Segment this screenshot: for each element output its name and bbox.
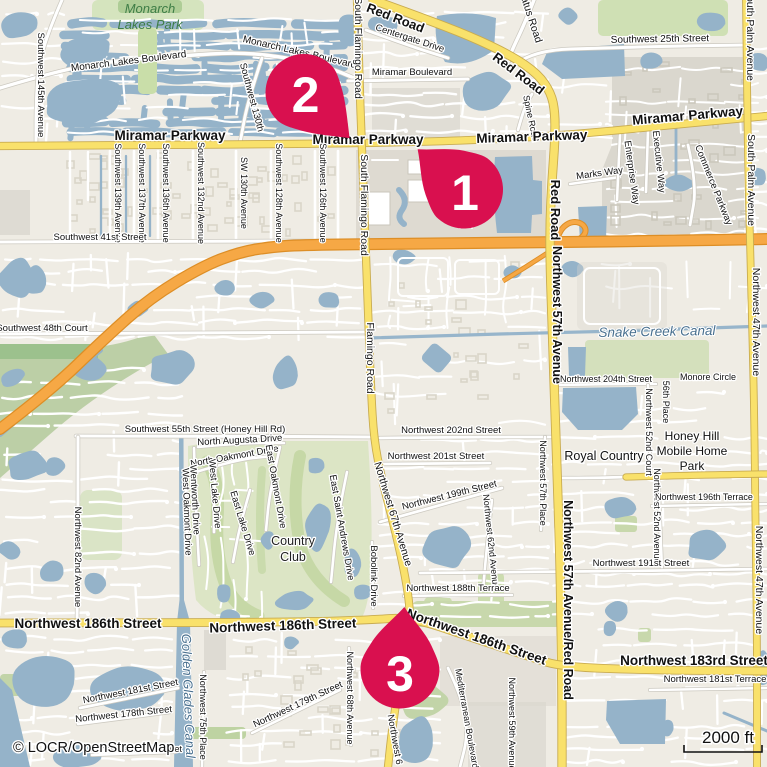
svg-text:South Flamingo Road: South Flamingo Road bbox=[352, 0, 364, 99]
svg-text:Lakes Park: Lakes Park bbox=[117, 17, 184, 32]
svg-text:2: 2 bbox=[292, 67, 320, 123]
svg-text:Mobile Home: Mobile Home bbox=[657, 444, 728, 458]
svg-text:Bobolink Drive: Bobolink Drive bbox=[368, 545, 379, 606]
svg-text:Northwest 201st Street: Northwest 201st Street bbox=[388, 451, 485, 462]
svg-text:2000 ft: 2000 ft bbox=[702, 728, 754, 747]
svg-text:Northwest 57th Avenue: Northwest 57th Avenue bbox=[550, 246, 564, 384]
svg-text:Northwest 47th Avenue: Northwest 47th Avenue bbox=[750, 268, 762, 377]
svg-text:Club: Club bbox=[280, 550, 306, 564]
svg-text:Northwest 186th Street: Northwest 186th Street bbox=[14, 616, 162, 631]
svg-text:Southwest 41st Street: Southwest 41st Street bbox=[54, 232, 147, 243]
svg-text:Northwest 202nd Street: Northwest 202nd Street bbox=[401, 425, 501, 436]
svg-text:Northwest 183rd Street: Northwest 183rd Street bbox=[620, 653, 767, 668]
svg-text:Honey Hill: Honey Hill bbox=[665, 429, 720, 443]
svg-text:Southwest 139th Avenue: Southwest 139th Avenue bbox=[113, 143, 123, 242]
svg-text:Northwest 59th Avenue: Northwest 59th Avenue bbox=[507, 678, 517, 767]
svg-text:Monore Circle: Monore Circle bbox=[680, 372, 736, 382]
svg-text:Miramar Boulevard: Miramar Boulevard bbox=[372, 67, 452, 78]
svg-text:South Palm Avenue: South Palm Avenue bbox=[744, 0, 756, 81]
svg-text:Northwest 196th Terrace: Northwest 196th Terrace bbox=[655, 492, 753, 502]
svg-text:Northwest 68th Avenue: Northwest 68th Avenue bbox=[345, 652, 355, 745]
svg-text:Northwest 57th Place: Northwest 57th Place bbox=[538, 440, 548, 526]
svg-text:Northwest 204th Street: Northwest 204th Street bbox=[560, 374, 653, 384]
svg-text:Northwest 52nd Court: Northwest 52nd Court bbox=[644, 388, 654, 476]
svg-text:Southwest 48th Court: Southwest 48th Court bbox=[0, 323, 88, 334]
svg-text:3: 3 bbox=[386, 646, 414, 702]
svg-text:Monarch: Monarch bbox=[125, 1, 176, 16]
svg-text:Southwest 128th Avenue: Southwest 128th Avenue bbox=[274, 143, 284, 242]
svg-text:56th Place: 56th Place bbox=[661, 381, 671, 424]
svg-text:Country: Country bbox=[271, 534, 316, 548]
svg-text:SW 130th Avenue: SW 130th Avenue bbox=[239, 157, 249, 229]
svg-text:Southwest 136th Avenue: Southwest 136th Avenue bbox=[161, 143, 171, 242]
svg-text:Red Road: Red Road bbox=[548, 180, 563, 241]
svg-text:Northwest 82nd Avenue: Northwest 82nd Avenue bbox=[72, 507, 83, 608]
svg-text:Southwest 132nd Avenue: Southwest 132nd Avenue bbox=[196, 142, 206, 244]
svg-text:South Palm Avenue: South Palm Avenue bbox=[745, 134, 757, 226]
svg-text:Snake Creek Canal: Snake Creek Canal bbox=[598, 323, 716, 340]
svg-text:Northwest 181st Terrace: Northwest 181st Terrace bbox=[664, 674, 767, 685]
svg-text:Northwest 75th Place: Northwest 75th Place bbox=[198, 674, 208, 760]
svg-text:Southwest 126th Avenue: Southwest 126th Avenue bbox=[318, 143, 328, 242]
svg-text:South Flamingo Road: South Flamingo Road bbox=[358, 154, 370, 256]
svg-text:Southwest 145th Avenue: Southwest 145th Avenue bbox=[35, 33, 46, 138]
svg-text:Miramar Parkway: Miramar Parkway bbox=[114, 128, 226, 143]
svg-text:Northwest 57th Avenue/Red Road: Northwest 57th Avenue/Red Road bbox=[561, 500, 575, 700]
svg-text:Park: Park bbox=[680, 459, 706, 473]
svg-text:Northwest 188th Terrace: Northwest 188th Terrace bbox=[406, 583, 509, 594]
svg-text:1: 1 bbox=[451, 165, 479, 221]
svg-text:Royal Country: Royal Country bbox=[564, 449, 644, 463]
svg-text:Northwest 191st Street: Northwest 191st Street bbox=[593, 558, 690, 569]
svg-text:Southwest 137th Avenue: Southwest 137th Avenue bbox=[137, 143, 147, 242]
svg-text:Southwest 25th Street: Southwest 25th Street bbox=[611, 33, 710, 46]
svg-text:© LOCR/OpenStreetMap: © LOCR/OpenStreetMap bbox=[13, 740, 174, 756]
svg-text:Northwest 47th Avenue: Northwest 47th Avenue bbox=[753, 526, 765, 635]
svg-text:Northwest 52nd Avenue: Northwest 52nd Avenue bbox=[652, 468, 662, 563]
svg-text:Flamingo Road: Flamingo Road bbox=[364, 322, 376, 393]
